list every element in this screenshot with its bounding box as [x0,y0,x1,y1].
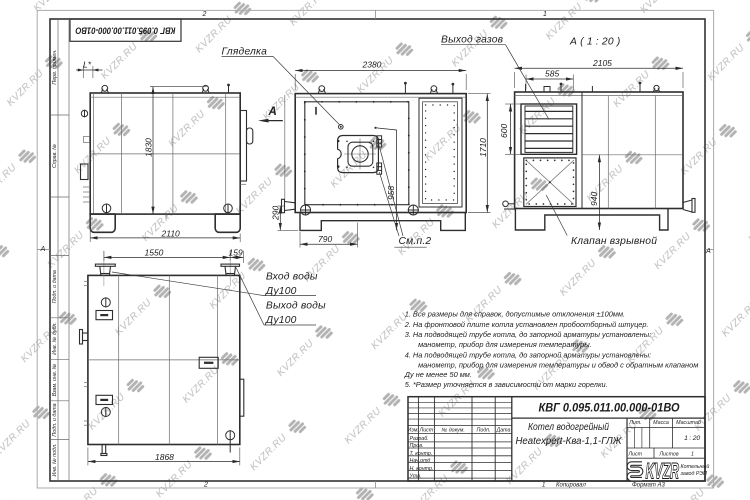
svg-text:290: 290 [271,206,281,221]
svg-text:Масса: Масса [653,420,669,426]
svg-text:L*: L* [83,60,92,70]
svg-text:№ докум.: № докум. [442,428,465,434]
svg-text:Подп. и дата: Подп. и дата [52,270,58,303]
svg-text:Подп.: Подп. [477,428,491,434]
svg-text:А ( 1 : 20 ): А ( 1 : 20 ) [569,37,620,48]
svg-text:Разраб.: Разраб. [410,436,429,442]
svg-text:манометр, прибор для измерения: манометр, прибор для измерения температу… [418,361,698,370]
svg-text:Выход газов: Выход газов [441,35,504,46]
svg-text:Нач.отд: Нач.отд [410,458,431,464]
svg-text:1550: 1550 [145,247,164,257]
svg-text:Клапан взрывной: Клапан взрывной [571,236,657,247]
svg-text:2: 2 [202,11,207,18]
svg-text:2105: 2105 [592,58,612,68]
svg-text:Перв. примен.: Перв. примен. [52,49,58,84]
svg-text:Котельный: Котельный [681,463,710,470]
svg-text:Лит.: Лит. [628,420,641,426]
svg-text:2380: 2380 [362,60,382,70]
svg-text:940: 940 [589,192,599,206]
svg-text:Т. контр.: Т. контр. [410,451,433,457]
svg-text:1710: 1710 [478,138,488,157]
svg-text:1: 1 [691,451,694,457]
svg-text:Гляделка: Гляделка [222,47,268,58]
svg-text:Масштаб: Масштаб [676,420,702,426]
svg-text:А: А [705,248,711,255]
svg-text:Инв. № подл.: Инв. № подл. [52,444,58,477]
svg-text:1 : 20: 1 : 20 [684,435,700,442]
svg-text:Ду100: Ду100 [265,286,297,297]
svg-text:2: 2 [203,482,208,489]
svg-text:Н. контр.: Н. контр. [410,466,434,472]
svg-text:Ду100: Ду100 [265,315,297,326]
svg-text:3. На подводящей трубе котла,: 3. На подводящей трубе котла, до запорно… [405,330,652,339]
svg-text:4. На подводящей трубе котла,: 4. На подводящей трубе котла, до запорно… [405,350,652,359]
svg-text:KVZR: KVZR [646,459,680,484]
svg-text:1830: 1830 [143,138,153,157]
svg-text:Изм.: Изм. [408,428,419,434]
svg-text:585: 585 [545,69,559,79]
svg-text:Подп. и дата: Подп. и дата [52,403,58,436]
svg-text:А: А [268,106,277,118]
svg-text:790: 790 [318,234,332,244]
svg-text:Пров.: Пров. [410,443,424,449]
svg-text:Инв. № дубл.: Инв. № дубл. [52,322,58,355]
svg-text:Котел водогрейный: Котел водогрейный [528,422,609,433]
svg-text:Heatexpert-Ква-1,1-ГЛЖ: Heatexpert-Ква-1,1-ГЛЖ [516,436,623,447]
svg-text:КВГ 0.095.011.00.000-01ВО: КВГ 0.095.011.00.000-01ВО [75,25,175,36]
svg-text:600: 600 [499,124,509,138]
svg-text:Копировал: Копировал [556,483,586,489]
svg-text:Лист: Лист [419,428,434,434]
svg-text:2110: 2110 [161,228,181,238]
svg-text:Листов: Листов [658,451,679,457]
svg-text:Ду не менее 50 мм.: Ду не менее 50 мм. [404,370,472,379]
svg-text:1: 1 [542,483,545,489]
svg-text:А: А [40,246,46,253]
svg-text:5. *Размер уточняется в завис: 5. *Размер уточняется в зависимости от м… [405,380,608,389]
svg-text:КВГ 0.095.011.00.000-01ВО: КВГ 0.095.011.00.000-01ВО [539,400,681,414]
svg-text:манометр, прибор для измерения: манометр, прибор для измерения температу… [418,340,592,349]
svg-text:завод РЭП: завод РЭП [680,471,708,477]
svg-text:Дата: Дата [496,428,511,434]
svg-text:Взам. инв. №: Взам. инв. № [52,363,58,396]
svg-text:1. Все размеры для справок, д: 1. Все размеры для справок, допустимые о… [405,310,625,319]
svg-text:1868: 1868 [155,452,174,462]
svg-text:Лист: Лист [627,451,642,457]
svg-text:Утв.: Утв. [410,473,422,479]
svg-text:См.п.2: См.п.2 [399,236,432,247]
svg-text:Вход воды: Вход воды [266,271,318,282]
svg-text:159: 159 [229,247,243,257]
svg-text:Формат А3: Формат А3 [632,483,665,489]
svg-text:Справ. №: Справ. № [52,144,58,168]
svg-text:Выход воды: Выход воды [266,301,326,312]
svg-text:2. На фронтовой плите котла у: 2. На фронтовой плите котла установлен п… [404,320,649,329]
svg-text:1: 1 [543,11,547,18]
